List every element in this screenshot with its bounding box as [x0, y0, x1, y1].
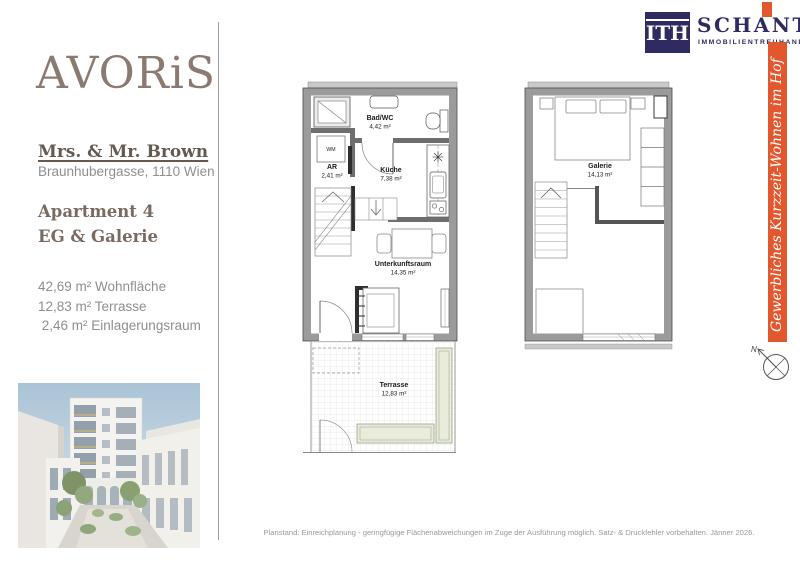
- avoris-logo: AVORiS: [36, 52, 216, 96]
- client-address: Braunhubergasse, 1110 Wien: [38, 164, 215, 179]
- room-area-terrasse: 12,83 m²: [382, 391, 407, 398]
- floorplan-eg: WM Bad/WC 4,42 m² AR 2,41 m² Küche 7,38 …: [300, 76, 462, 456]
- room-name-kueche: Küche: [380, 167, 402, 174]
- room-area-galerie: 14,13 m²: [588, 172, 613, 179]
- room-area-kueche: 7,38 m²: [380, 176, 401, 183]
- washbasin-icon: [370, 96, 398, 108]
- ith-logo-text: ITH: [646, 21, 689, 45]
- room-name-ar: AR: [327, 164, 337, 171]
- schantl-name: SCHANTL: [697, 13, 800, 37]
- floorplan-brochure-page: AVORiS Mrs. & Mr. Brown Braunhubergasse,…: [0, 0, 800, 566]
- apartment-title: Apartment 4: [38, 202, 154, 221]
- client-name: Mrs. & Mr. Brown: [38, 142, 208, 162]
- room-name-unterkunftsraum: Unterkunftsraum: [375, 261, 431, 268]
- washing-machine-label: WM: [326, 147, 335, 153]
- room-name-galerie: Galerie: [588, 163, 612, 170]
- stairs-landing-icon: [355, 198, 397, 220]
- sofa-icon: [363, 288, 399, 333]
- building-rendering: [18, 383, 200, 548]
- wardrobe-icon: [641, 128, 664, 206]
- ith-logo-icon: ITH: [645, 12, 690, 53]
- vertical-divider: [218, 22, 219, 540]
- banner-accent-square: [762, 2, 772, 17]
- room-area-unterkunftsraum: 14,35 m²: [391, 270, 416, 277]
- stairs-icon: [535, 182, 567, 258]
- shower-icon: [314, 97, 350, 127]
- kitchen-counter-icon: [427, 145, 449, 217]
- room-name-badwc: Bad/WC: [367, 115, 394, 122]
- vertical-marketing-banner: Gewerbliches Kurzzeit-Wohnen im Hof: [768, 42, 787, 342]
- bed-icon: [540, 97, 645, 160]
- compass-north-label: N: [751, 345, 757, 354]
- floorplan-galerie: Galerie 14,13 m²: [518, 76, 678, 356]
- room-area-ar: 2,41 m²: [321, 173, 342, 180]
- room-name-terrasse: Terrasse: [380, 382, 409, 389]
- disclaimer-text: Planstand: Einreichplanung - geringfügig…: [228, 528, 790, 537]
- stairs-icon: [315, 188, 351, 256]
- compass-icon: N: [745, 338, 797, 394]
- room-area-badwc: 4,42 m²: [369, 124, 390, 131]
- apartment-level: EG & Galerie: [38, 227, 158, 246]
- area-summary: 42,69 m² Wohnfläche 12,83 m² Terrasse 2,…: [38, 277, 201, 336]
